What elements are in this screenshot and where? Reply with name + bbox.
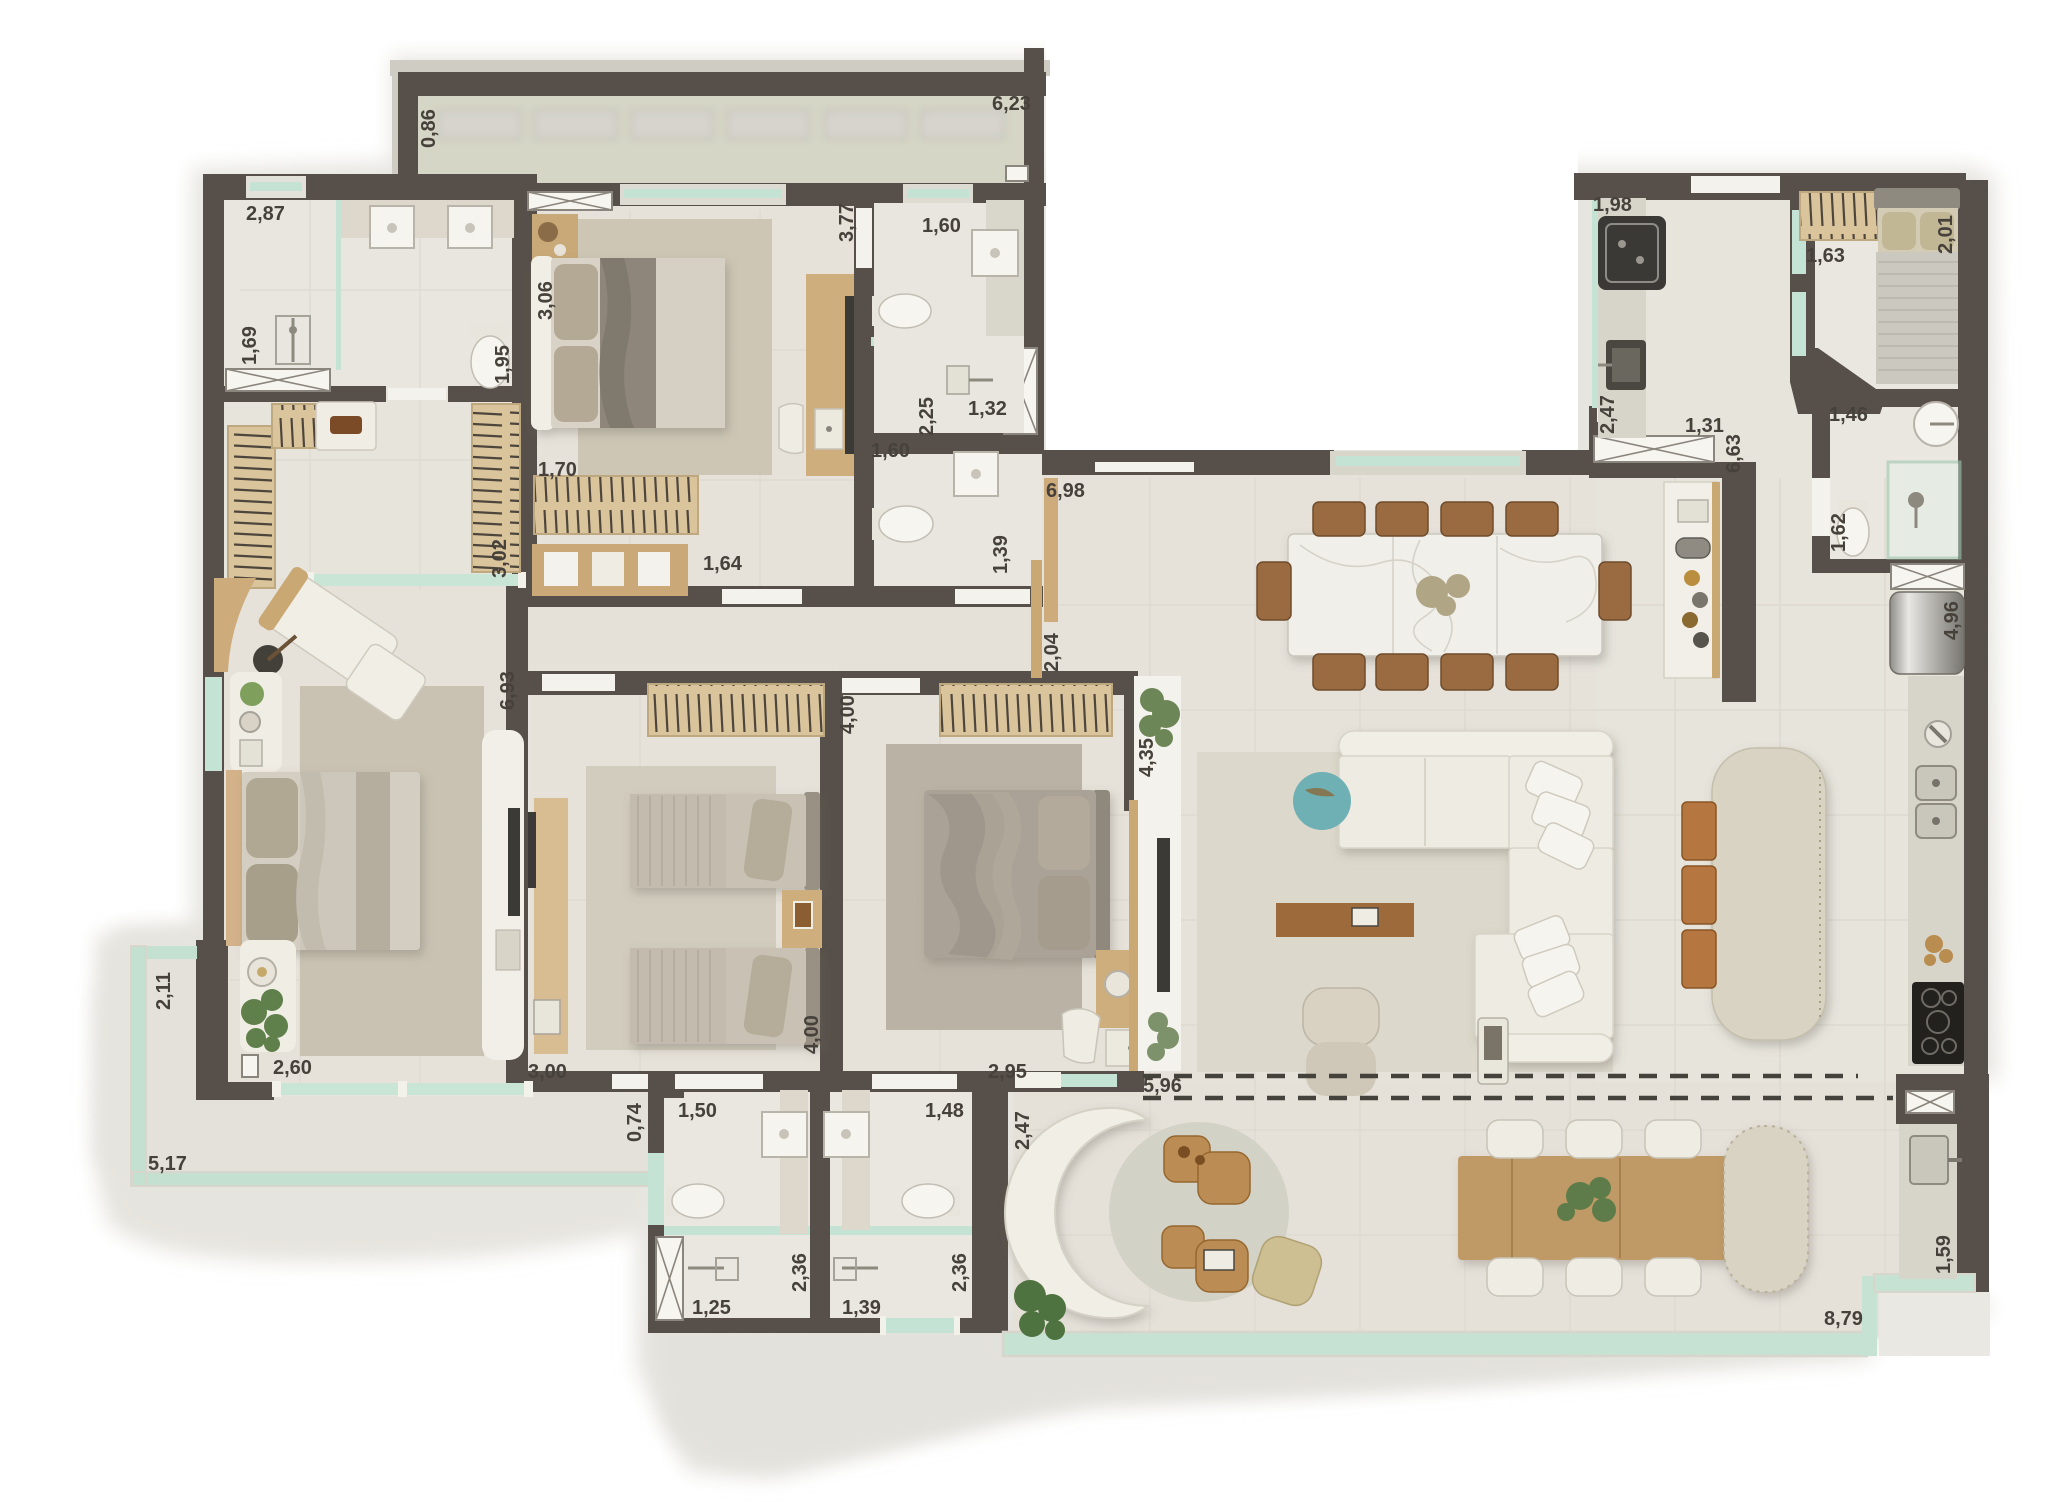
svg-text:4,35: 4,35 <box>1136 738 1158 777</box>
svg-text:6,98: 6,98 <box>1046 480 1085 502</box>
svg-text:4,00: 4,00 <box>801 1015 823 1054</box>
svg-text:2,47: 2,47 <box>1012 1111 1034 1150</box>
svg-text:1,70: 1,70 <box>538 459 577 481</box>
svg-text:1,31: 1,31 <box>1685 415 1724 437</box>
svg-text:8,79: 8,79 <box>1824 1308 1863 1330</box>
svg-text:1,32: 1,32 <box>968 398 1007 420</box>
svg-text:0,86: 0,86 <box>418 109 440 148</box>
svg-text:3,06: 3,06 <box>535 281 557 320</box>
svg-text:1,25: 1,25 <box>692 1297 731 1319</box>
svg-text:6,93: 6,93 <box>497 671 519 710</box>
svg-text:6,23: 6,23 <box>992 93 1031 115</box>
svg-text:2,25: 2,25 <box>916 397 938 436</box>
svg-text:1,60: 1,60 <box>871 440 910 462</box>
svg-text:1,64: 1,64 <box>703 553 743 575</box>
svg-text:2,11: 2,11 <box>153 972 175 1010</box>
svg-text:2,60: 2,60 <box>273 1057 312 1079</box>
svg-text:4,96: 4,96 <box>1941 601 1963 640</box>
svg-text:2,87: 2,87 <box>246 203 285 225</box>
svg-text:1,59: 1,59 <box>1933 1235 1955 1274</box>
svg-text:2,47: 2,47 <box>1597 395 1619 434</box>
svg-text:5,96: 5,96 <box>1143 1075 1182 1097</box>
svg-text:1,48: 1,48 <box>925 1100 964 1122</box>
svg-text:1,62: 1,62 <box>1828 513 1850 552</box>
svg-text:1,63: 1,63 <box>1806 245 1845 267</box>
svg-text:3,02: 3,02 <box>489 539 511 578</box>
svg-text:1,98: 1,98 <box>1593 194 1632 216</box>
svg-text:5,17: 5,17 <box>148 1153 187 1175</box>
svg-text:1,60: 1,60 <box>922 215 961 237</box>
svg-text:2,04: 2,04 <box>1041 632 1063 672</box>
svg-text:6,63: 6,63 <box>1723 434 1745 473</box>
svg-text:1,39: 1,39 <box>990 535 1012 574</box>
svg-text:3,00: 3,00 <box>528 1061 567 1083</box>
svg-text:2,01: 2,01 <box>1935 215 1957 254</box>
svg-text:1,50: 1,50 <box>678 1100 717 1122</box>
svg-text:2,36: 2,36 <box>949 1253 971 1292</box>
svg-text:1,69: 1,69 <box>239 326 261 365</box>
svg-text:3,77: 3,77 <box>836 203 858 242</box>
svg-text:1,39: 1,39 <box>842 1297 881 1319</box>
svg-text:4,00: 4,00 <box>837 695 859 734</box>
svg-text:2,36: 2,36 <box>789 1253 811 1292</box>
svg-text:1,46: 1,46 <box>1829 404 1868 426</box>
svg-text:2,95: 2,95 <box>988 1061 1027 1083</box>
svg-text:1,95: 1,95 <box>492 345 514 384</box>
svg-text:0,74: 0,74 <box>624 1102 646 1142</box>
